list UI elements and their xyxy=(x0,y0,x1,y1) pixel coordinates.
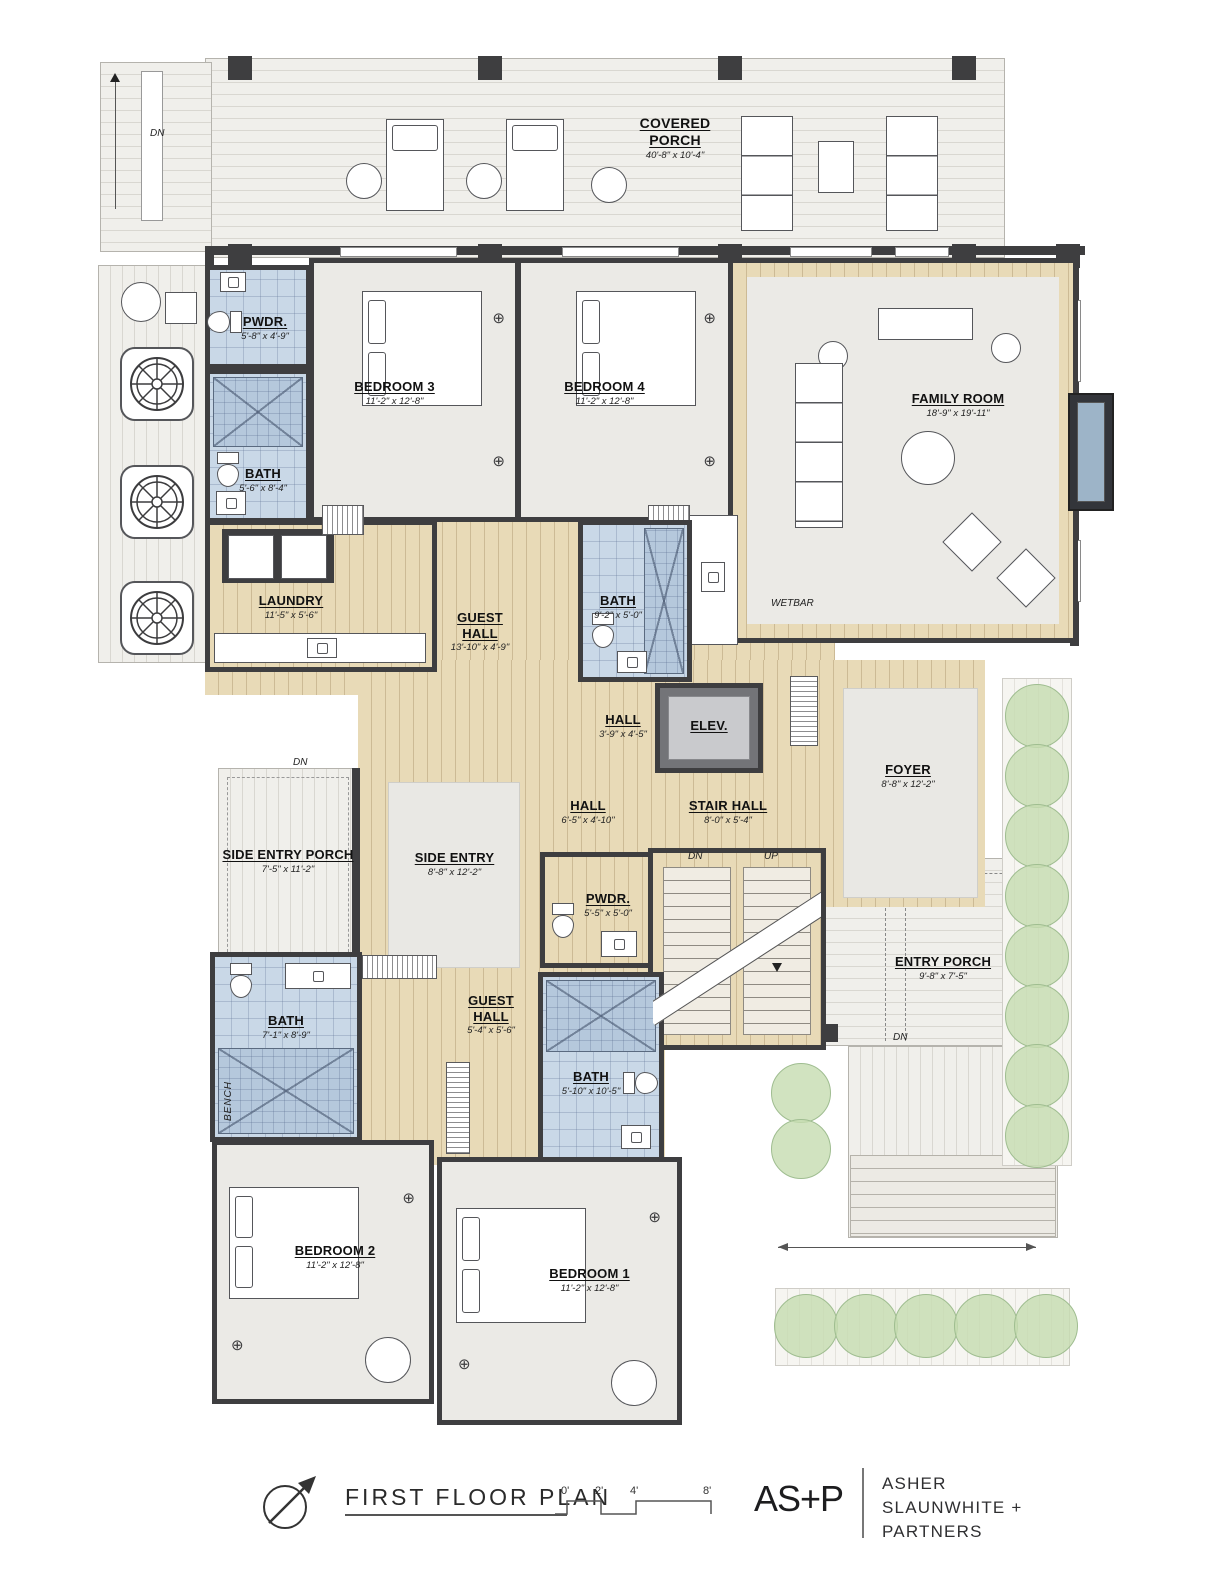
window xyxy=(895,247,949,257)
bush xyxy=(774,1294,838,1358)
room-dim: 5'-10" x 10'-5" xyxy=(543,1086,639,1097)
wetbar-sink xyxy=(701,562,725,592)
stair-up-label: UP xyxy=(764,851,778,862)
room-name: BEDROOM 3 xyxy=(314,379,475,395)
room-laundry: LAUNDRY 11'-5" x 5'-6" xyxy=(205,520,437,672)
room-name: BATH xyxy=(583,593,653,609)
room-name: HALL xyxy=(533,798,643,814)
hvac-fan-icon xyxy=(117,344,197,424)
firm-name-line: PARTNERS xyxy=(882,1520,1023,1544)
room-pwdr-upper: PWDR. 5'-8" x 4'-9" xyxy=(205,265,311,369)
room-name: FAMILY ROOM xyxy=(843,391,1073,407)
side-table xyxy=(991,333,1021,363)
closet xyxy=(362,955,437,979)
room-label: BEDROOM 3 11'-2" x 12'-8" xyxy=(314,379,475,407)
room-label: HALL 6'-5" x 4'-10" xyxy=(533,798,643,826)
closet xyxy=(790,676,818,746)
porch-column xyxy=(478,56,502,80)
room-label: FAMILY ROOM 18'-9" x 19'-11" xyxy=(843,391,1073,419)
room-label: PWDR. 5'-8" x 4'-9" xyxy=(224,314,306,342)
firm-name-line: ASHER xyxy=(882,1472,1023,1496)
toilet-bowl xyxy=(230,975,252,998)
closet xyxy=(446,1062,470,1154)
room-name: SIDE ENTRY xyxy=(382,850,527,866)
console-table xyxy=(878,308,973,340)
light-fixture-icon: ⊕ xyxy=(648,1210,661,1225)
bush xyxy=(1005,804,1069,868)
room-dim: 5'-8" x 4'-9" xyxy=(224,331,306,342)
porch-column xyxy=(718,56,742,80)
room-name: GUEST HALL xyxy=(456,993,526,1024)
entry-steps xyxy=(850,1155,1056,1237)
room-bath-center: BATH 9'-2" x 5'-0" xyxy=(578,520,692,682)
stair-down-label: DN xyxy=(893,1032,907,1043)
room-dim: 11'-2" x 12'-8" xyxy=(314,396,475,407)
room-dim: 5'-4" x 5'-6" xyxy=(432,1025,550,1036)
room-dim: 8'-0" x 5'-4" xyxy=(658,815,798,826)
porch-lounge-chair xyxy=(506,119,564,211)
window xyxy=(790,247,872,257)
toilet-tank xyxy=(230,963,252,975)
room-bath-upper: BATH 5'-6" x 8'-4" xyxy=(205,369,311,523)
sink xyxy=(216,491,246,515)
room-dim: 5'-5" x 5'-0" xyxy=(559,908,657,919)
room-dim: 11'-2" x 12'-8" xyxy=(241,1260,429,1271)
room-name: HALL xyxy=(578,712,668,728)
room-bedroom-3: ⊕ ⊕ BEDROOM 3 11'-2" x 12'-8" xyxy=(309,258,520,522)
dimension-arrow xyxy=(778,1247,1036,1248)
room-family-room: WETBAR FAMILY ROOM 18'-9" x 19'-11" xyxy=(728,258,1078,643)
room-label: BEDROOM 4 11'-2" x 12'-8" xyxy=(521,379,688,407)
fireplace-insert xyxy=(1077,402,1105,502)
wetbar-counter xyxy=(688,515,738,645)
bench-label: BENCH xyxy=(223,1081,234,1121)
room-dim: 8'-8" x 12'-2" xyxy=(382,867,527,878)
hvac-fan-icon xyxy=(117,578,197,658)
firm-name: ASHER SLAUNWHITE + PARTNERS xyxy=(882,1472,1023,1543)
room-dim: 6'-5" x 4'-10" xyxy=(533,815,643,826)
room-label: SIDE ENTRY 8'-8" x 12'-2" xyxy=(382,850,527,878)
light-fixture-icon: ⊕ xyxy=(492,311,505,326)
room-label: HALL 3'-9" x 4'-5" xyxy=(578,712,668,740)
room-label: BATH 7'-1" x 8'-9" xyxy=(215,1013,357,1041)
shower: BENCH xyxy=(218,1048,354,1134)
room-dim: 40'-8" x 10'-4" xyxy=(575,150,775,161)
room-label: FOYER 8'-8" x 12'-2" xyxy=(838,762,978,790)
bush xyxy=(894,1294,958,1358)
sink xyxy=(220,272,246,292)
pillow xyxy=(368,300,386,344)
scale-tick: 4' xyxy=(630,1485,638,1497)
round-chair xyxy=(365,1337,411,1383)
room-label: LAUNDRY 11'-5" x 5'-6" xyxy=(210,593,372,621)
closet xyxy=(322,505,364,535)
room-label: BEDROOM 2 11'-2" x 12'-8" xyxy=(241,1243,429,1271)
scale-tick: 2' xyxy=(595,1485,603,1497)
wetbar-label: WETBAR xyxy=(771,598,814,609)
toilet-tank xyxy=(217,452,239,464)
footer-divider xyxy=(862,1468,864,1538)
shower xyxy=(213,377,303,447)
room-label: BATH 9'-2" x 5'-0" xyxy=(583,593,653,621)
room-label: BATH 5'-10" x 10'-5" xyxy=(543,1069,639,1097)
bush xyxy=(1005,864,1069,928)
side-entry-porch-area: SIDE ENTRY PORCH 7'-5" x 11'-2" xyxy=(218,768,358,966)
room-name: BATH xyxy=(215,1013,357,1029)
room-name: ELEV. xyxy=(660,718,758,734)
room-name: BEDROOM 2 xyxy=(241,1243,429,1259)
room-dim: 9'-8" x 7'-5" xyxy=(819,971,1067,982)
fireplace xyxy=(1068,393,1114,511)
room-dim: 3'-9" x 4'-5" xyxy=(578,729,668,740)
pillow xyxy=(582,300,600,344)
laundry-sink xyxy=(307,638,337,658)
room-name: BEDROOM 1 xyxy=(502,1266,677,1282)
toilet-bowl xyxy=(592,625,614,648)
washer-dryer-alcove xyxy=(222,529,334,583)
room-bedroom-4: ⊕ ⊕ BEDROOM 4 11'-2" x 12'-8" xyxy=(516,258,733,522)
chair-cushion xyxy=(392,125,438,151)
room-name: STAIR HALL xyxy=(658,798,798,814)
scale-tick: 8' xyxy=(703,1485,711,1497)
room-dim: 18'-9" x 19'-11" xyxy=(843,408,1073,419)
porch-column xyxy=(952,56,976,80)
room-dim: 7'-5" x 11'-2" xyxy=(219,864,357,875)
room-pwdr-lower: PWDR. 5'-5" x 5'-0" xyxy=(540,852,662,968)
light-fixture-icon: ⊕ xyxy=(402,1191,415,1206)
porch-table xyxy=(818,141,854,193)
stair-down-label: DN xyxy=(293,757,307,768)
room-label: SIDE ENTRY PORCH 7'-5" x 11'-2" xyxy=(219,847,357,875)
bush xyxy=(1005,684,1069,748)
stair-direction-line xyxy=(115,81,116,209)
room-bedroom-2: ⊕ ⊕ BEDROOM 2 11'-2" x 12'-8" xyxy=(212,1140,434,1404)
pillow xyxy=(462,1217,480,1261)
room-bath-lower-left: BATH 7'-1" x 8'-9" BENCH xyxy=(210,952,362,1142)
room-label: PWDR. 5'-5" x 5'-0" xyxy=(559,891,657,919)
bush xyxy=(771,1063,831,1123)
room-name: BEDROOM 4 xyxy=(521,379,688,395)
sink xyxy=(285,963,351,989)
sink xyxy=(601,931,637,957)
bush xyxy=(954,1294,1018,1358)
room-dim: 7'-1" x 8'-9" xyxy=(215,1030,357,1041)
scale-tick: 0' xyxy=(561,1485,569,1497)
room-name: SIDE ENTRY PORCH xyxy=(219,847,357,863)
porch-side-table xyxy=(591,167,627,203)
room-label: BEDROOM 1 11'-2" x 12'-8" xyxy=(502,1266,677,1294)
bush xyxy=(1005,1044,1069,1108)
bush xyxy=(834,1294,898,1358)
bush xyxy=(1005,744,1069,808)
room-dim: 11'-2" x 12'-8" xyxy=(502,1283,677,1294)
pillow xyxy=(235,1196,253,1238)
deck-box xyxy=(165,292,197,324)
room-label: BATH 5'-6" x 8'-4" xyxy=(220,466,306,494)
room-elevator: ELEV. xyxy=(655,683,763,773)
room-name: ENTRY PORCH xyxy=(819,954,1067,970)
room-label: COVERED PORCH 40'-8" x 10'-4" xyxy=(575,115,775,161)
room-name: BATH xyxy=(220,466,306,482)
porch-side-table xyxy=(346,163,382,199)
room-dim: 9'-2" x 5'-0" xyxy=(583,610,653,621)
stair-rail xyxy=(141,71,163,221)
pillow xyxy=(462,1269,480,1313)
room-dim: 13'-10" x 4'-9" xyxy=(420,642,540,653)
sink xyxy=(621,1125,651,1149)
sink xyxy=(617,651,647,673)
room-name: PWDR. xyxy=(559,891,657,907)
room-dim: 11'-5" x 5'-6" xyxy=(210,610,372,621)
room-name: COVERED PORCH xyxy=(620,115,730,149)
firm-logo: AS+P xyxy=(754,1478,843,1520)
bush xyxy=(1005,984,1069,1048)
window xyxy=(340,247,457,257)
title-underline xyxy=(345,1514,567,1516)
light-fixture-icon: ⊕ xyxy=(458,1357,471,1372)
dryer xyxy=(281,535,327,579)
porch-sofa xyxy=(886,116,938,231)
room-label: GUEST HALL 5'-4" x 5'-6" xyxy=(432,993,550,1037)
bush xyxy=(1005,1104,1069,1168)
room-label: STAIR HALL 8'-0" x 5'-4" xyxy=(658,798,798,826)
light-fixture-icon: ⊕ xyxy=(492,454,505,469)
room-dim: 11'-2" x 12'-8" xyxy=(521,396,688,407)
light-fixture-icon: ⊕ xyxy=(703,454,716,469)
room-dim: 8'-8" x 12'-2" xyxy=(838,779,978,790)
room-name: FOYER xyxy=(838,762,978,778)
room-label: ELEV. xyxy=(660,718,758,734)
deck-table xyxy=(121,282,161,322)
hvac-fan-icon xyxy=(117,462,197,542)
light-fixture-icon: ⊕ xyxy=(231,1338,244,1353)
stair-down-label: DN xyxy=(150,128,164,139)
room-label: GUEST HALL 13'-10" x 4'-9" xyxy=(420,610,540,654)
exterior-stair-area xyxy=(100,62,212,252)
room-label: ENTRY PORCH 9'-8" x 7'-5" xyxy=(819,954,1067,982)
room-name: LAUNDRY xyxy=(210,593,372,609)
firm-name-line: SLAUNWHITE + xyxy=(882,1496,1023,1520)
laundry-counter xyxy=(214,633,426,663)
washer xyxy=(228,535,274,579)
porch-column xyxy=(228,56,252,80)
room-bath-lower-right: BATH 5'-10" x 10'-5" xyxy=(538,972,664,1168)
toilet xyxy=(229,963,253,999)
window xyxy=(562,247,679,257)
room-bedroom-1: ⊕ ⊕ BEDROOM 1 11'-2" x 12'-8" xyxy=(437,1157,682,1425)
room-name: PWDR. xyxy=(224,314,306,330)
room-name: GUEST HALL xyxy=(440,610,520,641)
north-arrow-icon xyxy=(258,1468,324,1534)
shower xyxy=(546,980,656,1052)
utility-deck-area xyxy=(98,265,212,663)
stair-down-label: DN xyxy=(688,851,702,862)
room-name: BATH xyxy=(543,1069,639,1085)
round-coffee-table xyxy=(901,431,955,485)
floor-plan-canvas: SIDE ENTRY PORCH 7'-5" x 11'-2" ENTRY PO… xyxy=(0,0,1224,1584)
bush xyxy=(771,1119,831,1179)
porch-side-table xyxy=(466,163,502,199)
foyer-rug xyxy=(843,688,978,898)
sofa xyxy=(795,363,843,528)
stair-arrow xyxy=(110,73,120,82)
light-fixture-icon: ⊕ xyxy=(703,311,716,326)
porch-lounge-chair xyxy=(386,119,444,211)
stair-arrow xyxy=(772,963,782,972)
stairwell xyxy=(648,848,826,1050)
round-chair xyxy=(611,1360,657,1406)
chair-cushion xyxy=(512,125,558,151)
room-dim: 5'-6" x 8'-4" xyxy=(220,483,306,494)
bush xyxy=(1014,1294,1078,1358)
